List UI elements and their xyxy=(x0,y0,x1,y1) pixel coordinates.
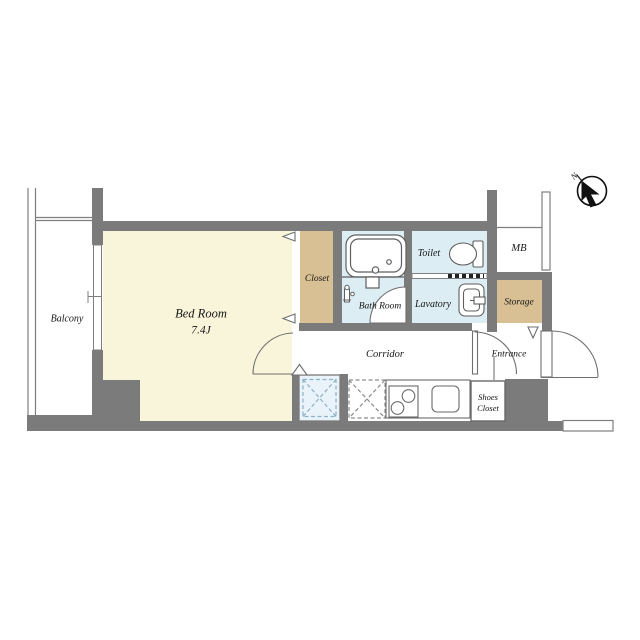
wall-corridor-band xyxy=(299,323,472,331)
shoes-closet-label-line1: Shoes xyxy=(478,392,499,402)
lavatory-door-leaf xyxy=(473,331,478,374)
bedroom-label: Bed Room xyxy=(175,307,227,321)
wall-storage-right xyxy=(542,280,552,331)
storage-door-marker xyxy=(528,327,538,338)
floor-plan-drawing: N Balcony Bed Room 7.4J Closet Bath Room… xyxy=(0,0,640,640)
washbasin-fixture xyxy=(459,284,485,316)
bathtub-drain xyxy=(387,260,392,265)
wall-left-pillar-top xyxy=(92,188,103,245)
toilet-bowl xyxy=(450,243,477,265)
washer-door-marker xyxy=(292,365,307,376)
compass-north-label: N xyxy=(568,169,581,182)
wall-right-column xyxy=(487,190,497,332)
window-frame xyxy=(94,245,102,350)
outside-step xyxy=(563,421,613,432)
bathroom-label: Bath Room xyxy=(359,302,402,312)
entrance-door-leaf xyxy=(541,331,552,377)
toilet-fixture xyxy=(450,241,484,267)
bath-step xyxy=(366,277,379,288)
toilet-lavatory-divider xyxy=(412,274,487,279)
shoes-closet-label-line2: Closet xyxy=(477,403,499,413)
meter-box-label: MB xyxy=(510,243,527,254)
refrigerator-space xyxy=(349,380,385,418)
kitchen-sink xyxy=(432,386,459,412)
bedroom-window xyxy=(88,245,102,350)
wall-under-mb xyxy=(497,272,552,280)
washbasin-tap xyxy=(474,297,485,304)
entrance-label: Entrance xyxy=(491,350,527,360)
pipe-shaft-outline xyxy=(542,192,550,270)
kitchen-counter xyxy=(386,380,470,418)
wall-bottom xyxy=(103,421,563,431)
floor-plan-page: N Balcony Bed Room 7.4J Closet Bath Room… xyxy=(0,0,640,640)
stove-burner-1 xyxy=(402,390,415,403)
wall-washer-right xyxy=(340,374,348,421)
stove-burner-2 xyxy=(391,402,404,415)
compass: N xyxy=(568,169,607,207)
entrance-door-arc xyxy=(552,331,598,377)
balcony-label: Balcony xyxy=(51,314,84,325)
washing-machine-space xyxy=(299,375,340,421)
wall-balcony-bottom xyxy=(27,415,103,431)
toilet-label: Toilet xyxy=(418,248,441,259)
lavatory-label: Lavatory xyxy=(414,299,452,310)
wall-washer-left xyxy=(292,374,299,421)
wall-top xyxy=(103,221,497,231)
wall-entrance-block xyxy=(505,379,548,423)
closet-label: Closet xyxy=(305,274,330,284)
storage-label: Storage xyxy=(504,298,534,308)
corridor-label: Corridor xyxy=(366,349,405,360)
bedroom-size-label: 7.4J xyxy=(191,325,211,337)
wall-closet-bath xyxy=(333,231,342,331)
bathtub-faucet-notch xyxy=(372,267,378,273)
